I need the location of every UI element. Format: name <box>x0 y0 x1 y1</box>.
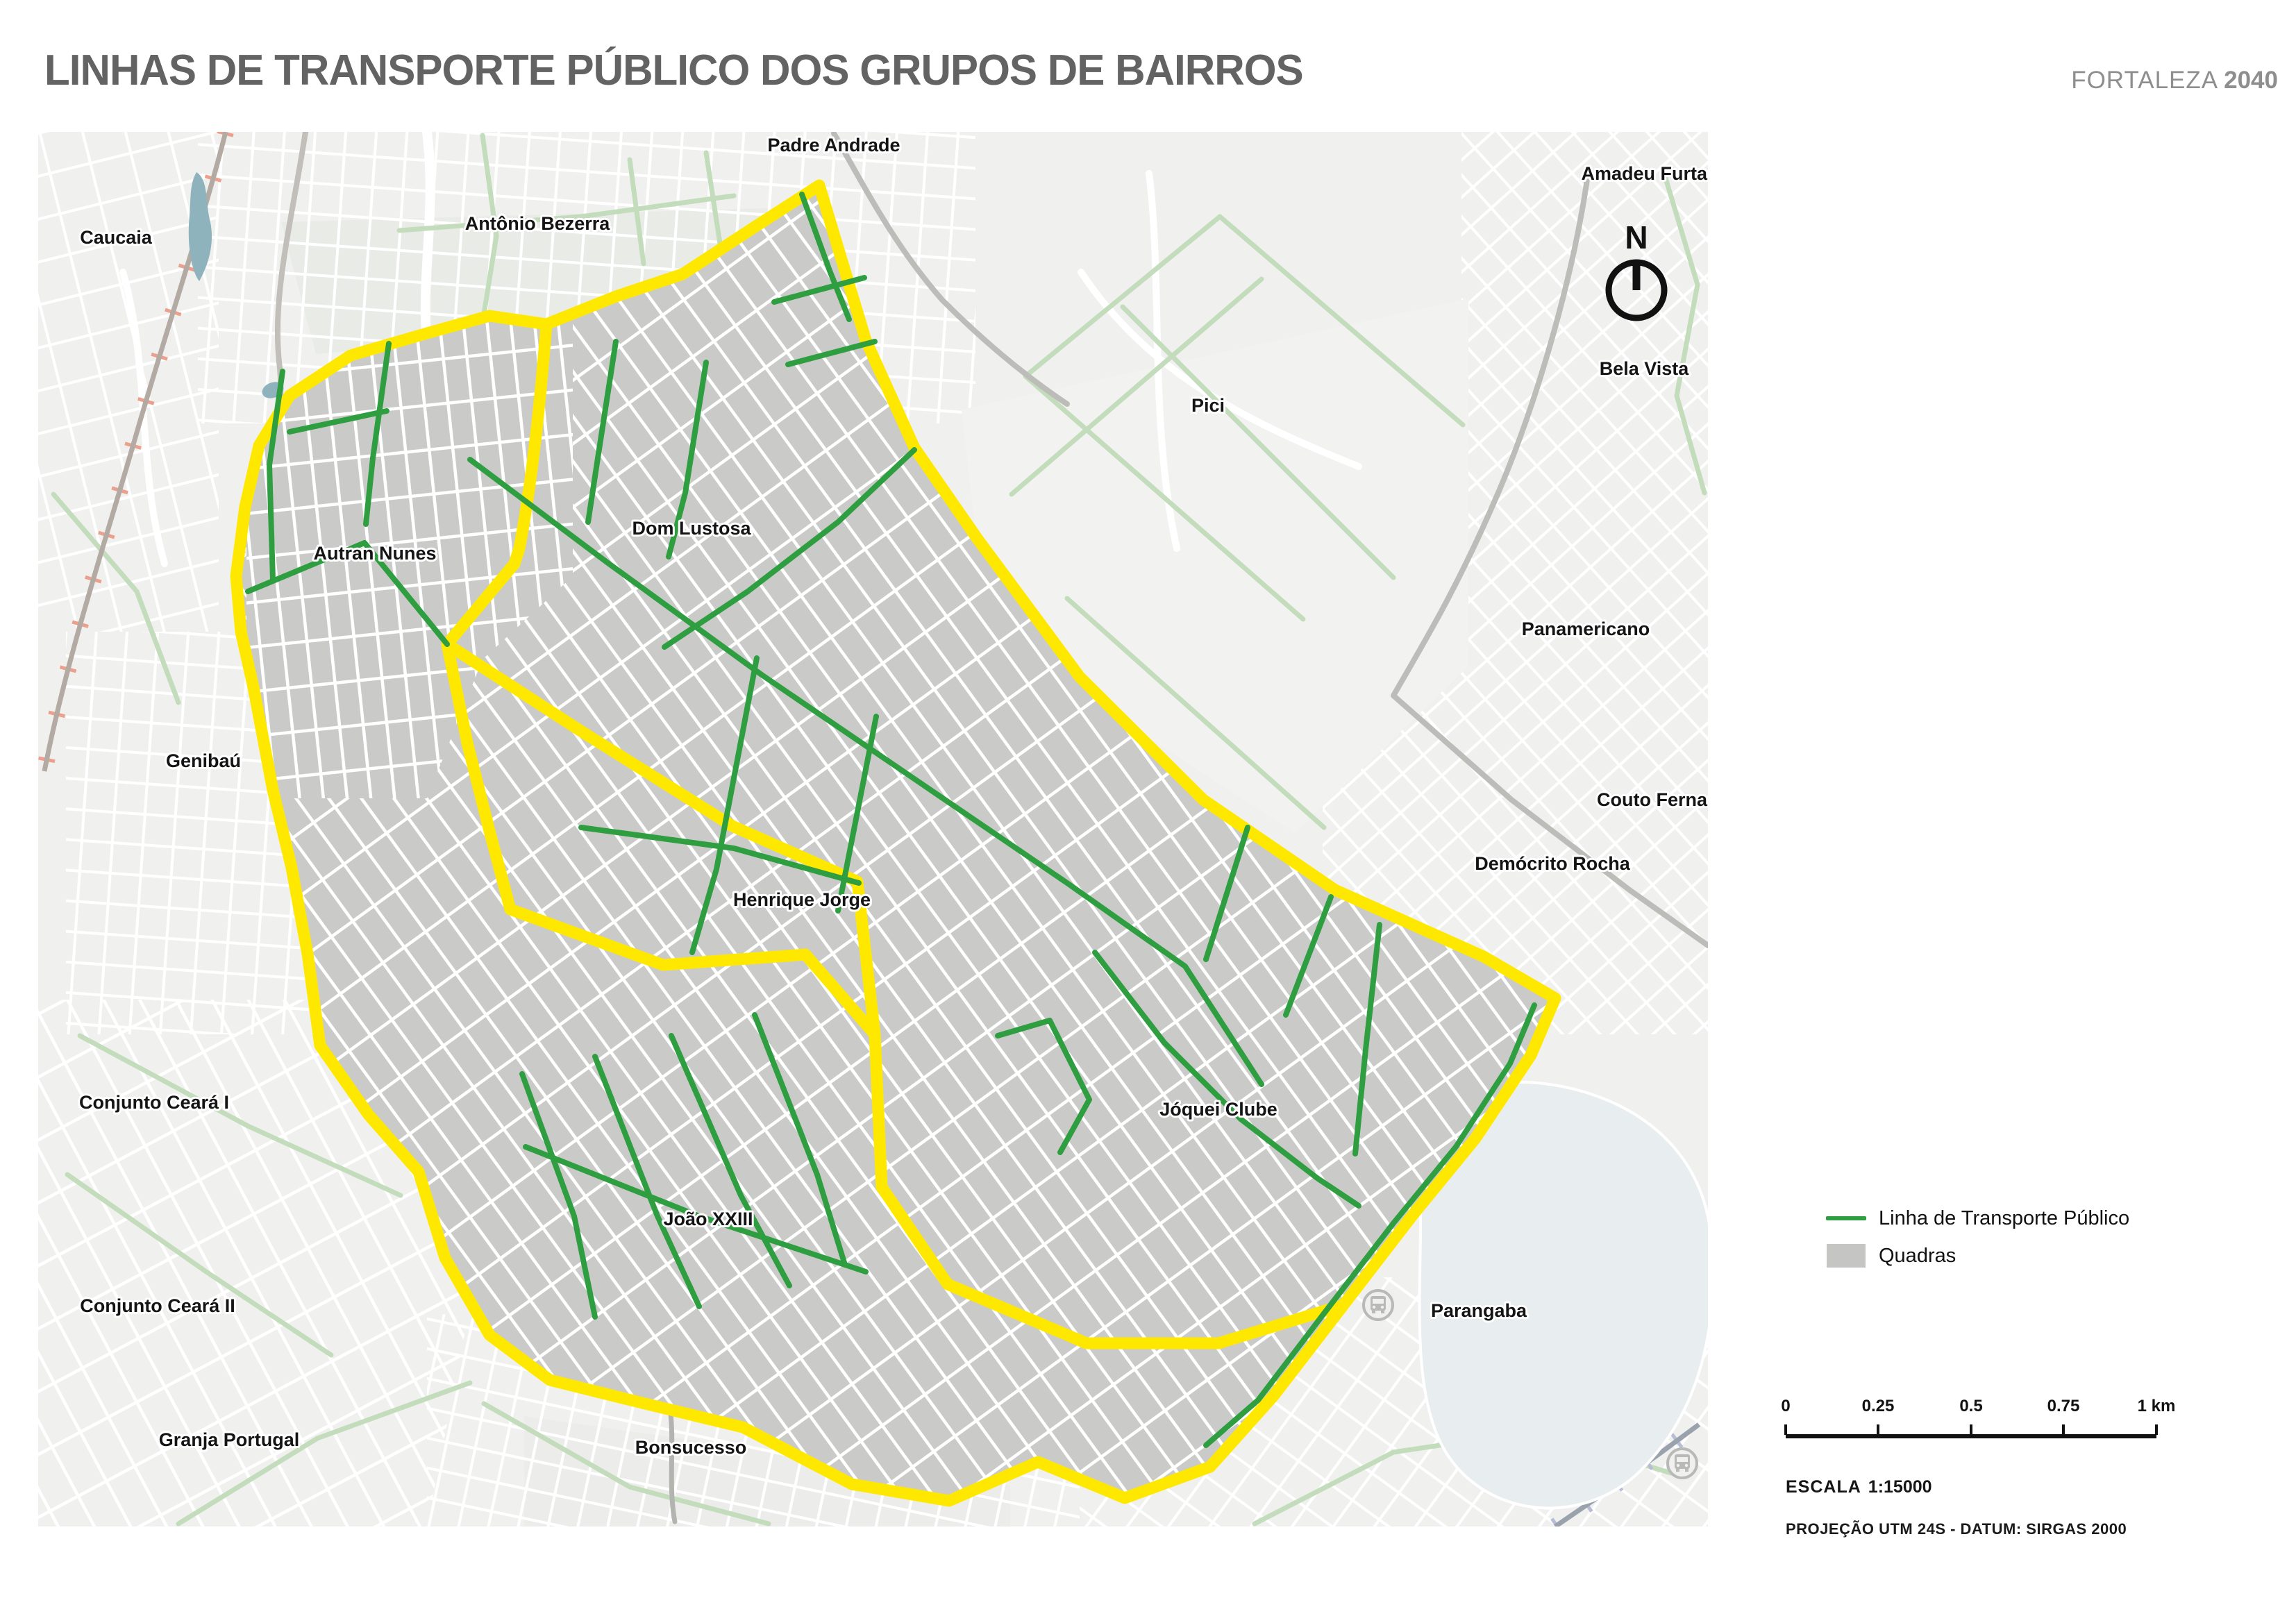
map-label-genibau: Genibaú <box>166 750 241 771</box>
scale-tick-label: 1 km <box>2138 1397 2176 1416</box>
legend-item-label: Linha de Transporte Público <box>1879 1207 2129 1230</box>
map-svg: N CaucaiaPadre AndradeAntônio BezerraAma… <box>38 132 1708 1527</box>
map-label-joquei-clube: Jóquei Clube <box>1159 1099 1277 1120</box>
scale-tick <box>2062 1424 2065 1435</box>
map-canvas: N CaucaiaPadre AndradeAntônio BezerraAma… <box>38 132 1708 1527</box>
map-label-joao-xxiii: João XXIII <box>663 1209 753 1229</box>
scale-label: ESCALA <box>1786 1477 1861 1497</box>
quadras-swatch <box>1827 1244 1866 1268</box>
map-label-padre-andrade: Padre Andrade <box>767 135 900 155</box>
scale-tick-label: 0.5 <box>1959 1397 1982 1416</box>
map-label-parangaba: Parangaba <box>1431 1300 1527 1321</box>
scale-bar: 0 0.25 0.5 0.75 1 km <box>1786 1397 2156 1443</box>
map-label-caucaia: Caucaia <box>80 227 153 248</box>
scale-tick-label: 0.75 <box>2047 1397 2080 1416</box>
scale-tick <box>1970 1424 1972 1435</box>
brand-year: 2040 <box>2224 67 2278 94</box>
scale-tick-label: 0.25 <box>1862 1397 1895 1416</box>
legend-item-transport-line: Linha de Transporte Público <box>1826 1205 2129 1231</box>
scale-text: ESCALA1:15000 <box>1786 1477 1932 1497</box>
scale-bar-line <box>1786 1434 2156 1438</box>
map-label-conjunto-ceara-ii: Conjunto Ceará II <box>80 1295 235 1316</box>
legend-key <box>1826 1244 1866 1268</box>
legend-item-label: Quadras <box>1879 1245 1956 1268</box>
projection-note: PROJEÇÃO UTM 24S - DATUM: SIRGAS 2000 <box>1786 1520 2127 1538</box>
legend: Linha de Transporte Público Quadras <box>1826 1205 2129 1280</box>
map-label-granja-portugal: Granja Portugal <box>159 1429 300 1450</box>
scale-value: 1:15000 <box>1868 1477 1932 1497</box>
map-label-bonsucesso: Bonsucesso <box>635 1437 747 1458</box>
scale-tick-label: 0 <box>1781 1397 1790 1416</box>
map-label-autran-nunes: Autran Nunes <box>313 543 436 564</box>
map-label-couto-fernandes: Couto Ferna <box>1597 789 1708 810</box>
map-label-henrique-jorge: Henrique Jorge <box>733 889 871 910</box>
map-label-amadeu-furtado: Amadeu Furta <box>1581 163 1708 184</box>
scale-tick <box>2155 1424 2158 1435</box>
map-label-democrito-rocha: Demócrito Rocha <box>1475 853 1631 874</box>
transport-line-swatch <box>1826 1216 1866 1220</box>
map-label-pici: Pici <box>1191 395 1225 416</box>
map-label-conjunto-ceara-i: Conjunto Ceará I <box>79 1092 229 1113</box>
map-label-bela-vista: Bela Vista <box>1600 358 1690 379</box>
map-label-panamericano: Panamericano <box>1522 619 1650 639</box>
north-arrow-label: N <box>1625 219 1648 255</box>
brand-name: FORTALEZA <box>2071 67 2218 94</box>
map-sheet: LINHAS DE TRANSPORTE PÚBLICO DOS GRUPOS … <box>0 0 2296 1623</box>
scale-tick <box>1784 1424 1787 1435</box>
map-label-antonio-bezerra: Antônio Bezerra <box>465 213 611 234</box>
legend-item-quadras: Quadras <box>1826 1243 2129 1269</box>
scale-tick <box>1877 1424 1879 1435</box>
page-title: LINHAS DE TRANSPORTE PÚBLICO DOS GRUPOS … <box>44 46 1303 95</box>
legend-key <box>1826 1216 1866 1220</box>
brand: FORTALEZA2040 <box>2071 67 2278 94</box>
map-label-dom-lustosa: Dom Lustosa <box>632 518 751 539</box>
